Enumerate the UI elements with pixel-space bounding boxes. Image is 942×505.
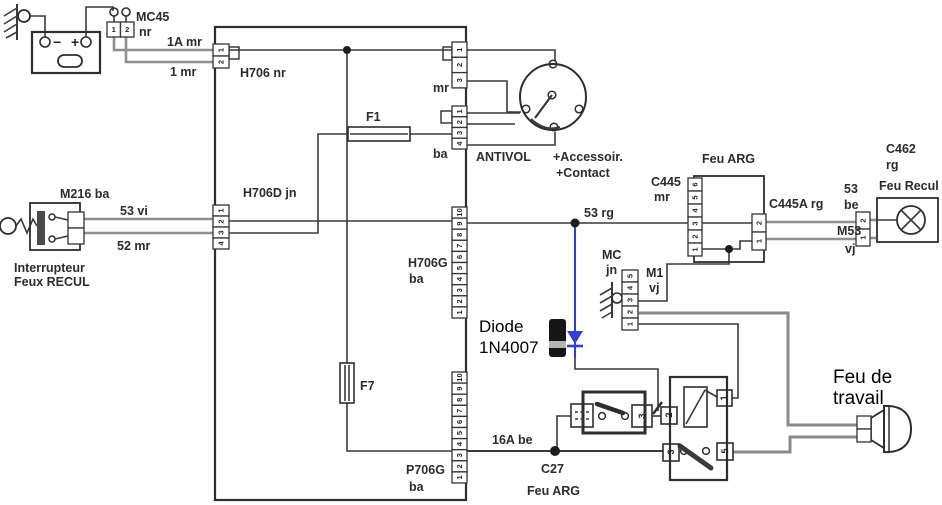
relay2-pin5: 5 [720, 448, 730, 453]
m216-connector [68, 212, 84, 244]
label-c27-feu-arg: Feu ARG [527, 484, 580, 498]
battery-slot [58, 55, 82, 67]
wire-f7-to-p706g [347, 403, 452, 451]
antivol-mr-connector: 123 [452, 42, 467, 88]
pin-number: 2 [626, 310, 635, 314]
pin-number: 1 [112, 25, 116, 34]
label-antivol-accessoir: +Accessoir. [553, 150, 623, 164]
label-feu-recul-title: Feu Recul [879, 179, 939, 193]
work-lamp [871, 406, 911, 452]
label-antivol-ba: ba [433, 147, 449, 161]
diode-component [549, 319, 583, 357]
h706d-connector: 1234 [213, 205, 229, 249]
ground-symbol-battery [4, 4, 30, 40]
pin-number: 2 [455, 299, 464, 303]
label-53rg: 53 rg [584, 206, 614, 220]
pin-number: 2 [455, 63, 464, 67]
pin-number: 5 [455, 431, 464, 435]
wiring-diagram: − + [0, 0, 942, 505]
battery-plus-sign: + [71, 34, 79, 50]
pin-number: 8 [455, 233, 464, 237]
label-m216: M216 ba [60, 187, 110, 201]
label-h706g-color: ba [409, 272, 425, 286]
pin-number: 2 [455, 120, 464, 124]
label-p706g-color: ba [409, 480, 425, 494]
pin-number: 5 [455, 266, 464, 270]
wire-relay2-pin5-to-worklamp [733, 437, 857, 452]
pin-number: 2 [217, 60, 226, 64]
pin-number: 1 [455, 109, 464, 113]
pin-number: 1 [217, 48, 226, 52]
pin-number: 3 [455, 288, 464, 292]
relay2-pin3: 3 [666, 449, 676, 454]
pin-cell [857, 416, 871, 429]
label-c462: C462 [886, 142, 916, 156]
pin-number: 3 [217, 230, 226, 234]
pin-number: 9 [455, 387, 464, 391]
relay2-pin2: 2 [664, 412, 674, 417]
label-h706d: H706D jn [243, 186, 297, 200]
h706g-connector: 10987654321 [452, 207, 467, 318]
fuse-f7 [340, 363, 354, 403]
relay-2: 2 1 3 5 [653, 377, 733, 480]
wire-antivol-ba4 [467, 132, 555, 145]
label-feux-recul: Feux RECUL [14, 275, 90, 289]
label-c27: C27 [541, 462, 564, 476]
label-mc45: MC45 [136, 10, 169, 24]
wire-antivol-pin1 [467, 50, 555, 61]
label-f7: F7 [360, 379, 375, 393]
label-h706g: H706G [408, 256, 448, 270]
junction-dots [343, 46, 733, 456]
label-mc: MC [602, 248, 621, 262]
wiring-diagram-page: − + [0, 0, 942, 505]
label-wire-1a-mr: 1A mr [167, 35, 202, 49]
ignition-key-lever [535, 95, 552, 118]
antivol-ba-tab [441, 111, 452, 123]
pin-number: 2 [691, 234, 700, 238]
antivol-mr-tab [443, 47, 452, 60]
relay2-blade [680, 446, 711, 468]
pin-number: 2 [125, 25, 129, 34]
annotation-worklight-line2: travail [833, 388, 884, 409]
wire-52-to-f1 [229, 134, 348, 233]
pin-number: 10 [455, 373, 464, 381]
label-p706g: P706G [406, 463, 445, 477]
c445-connector: 654321 [688, 178, 702, 256]
pin-number: 2 [455, 464, 464, 468]
label-wire-1-mr: 1 mr [170, 65, 197, 79]
label-53vi: 53 vi [120, 204, 148, 218]
relay1-pin3: 3 [637, 413, 647, 418]
pin-cell [68, 212, 84, 228]
annotation-diode-line1: Diode [479, 317, 523, 336]
pin-number: 8 [455, 398, 464, 402]
pin-number: 5 [691, 195, 700, 199]
pin-number: 1 [455, 310, 464, 314]
battery-minus-sign: − [53, 34, 61, 50]
label-c445: C445 [651, 175, 681, 189]
pin-number: 3 [626, 298, 635, 302]
antivol-ba-connector: 1234 [452, 106, 467, 149]
pin-number: 3 [691, 221, 700, 225]
m1-connector: 54321 [622, 270, 638, 330]
ignition-switch [520, 60, 586, 131]
pin-number: 6 [691, 182, 700, 186]
fuse-f1 [348, 127, 410, 141]
pin-number: 3 [455, 131, 464, 135]
pin-number: 5 [626, 274, 635, 278]
label-f1: F1 [366, 110, 381, 124]
pin-cell [68, 228, 84, 244]
junction-c27 [550, 446, 560, 456]
label-c445-color: mr [654, 190, 670, 204]
label-53be-2: be [844, 198, 859, 212]
pin-number: 1 [455, 475, 464, 479]
label-antivol-contact: +Contact [556, 166, 611, 180]
label-m1: M1 [646, 266, 663, 280]
relay-1: 3 [571, 392, 652, 433]
label-16a-be: 16A be [492, 433, 533, 447]
pin-number: 3 [455, 453, 464, 457]
c445a-connector: 21 [752, 214, 766, 250]
junction-53rg [571, 219, 580, 228]
pin-number: 2 [755, 221, 764, 225]
annotation-worklight-line1: Feu de [833, 367, 892, 388]
label-c445a: C445A rg [769, 197, 823, 211]
worklamp-connector [857, 416, 871, 442]
pin-number: 6 [455, 255, 464, 259]
label-h706: H706 nr [240, 66, 286, 80]
mc-ground-symbol [600, 282, 622, 318]
h706-tab [229, 47, 239, 59]
junction-top [343, 46, 351, 54]
label-c462-color: rg [886, 158, 899, 172]
pin-number: 1 [691, 247, 700, 251]
label-antivol-title: ANTIVOL [476, 150, 531, 164]
pin-number: 1 [626, 322, 635, 326]
h706-connector: 12 [213, 44, 229, 68]
relay1-blade [597, 404, 623, 413]
pin-number: 10 [455, 208, 464, 216]
pin-number: 1 [217, 208, 226, 212]
mc45-pin-strip: 12 [107, 22, 134, 37]
junction-feuarg [725, 245, 733, 253]
pin-number: 7 [455, 409, 464, 413]
pin-number: 1 [755, 239, 764, 243]
label-interrupteur: Interrupteur [14, 261, 85, 275]
relay2-pin1: 1 [719, 395, 729, 400]
pin-cell [857, 429, 871, 442]
pin-number: 3 [455, 78, 464, 82]
label-feu-arg-title: Feu ARG [702, 152, 755, 166]
label-vj: vj [649, 281, 659, 295]
pin-number: 1 [455, 48, 464, 52]
pin-number: 9 [455, 222, 464, 226]
label-52mr: 52 mr [117, 239, 150, 253]
wire-relay1-coil-to-c27 [557, 416, 571, 451]
wire-antivol-pin3 [467, 81, 521, 112]
diode-symbol-triangle [567, 331, 583, 344]
pin-number: 6 [455, 420, 464, 424]
label-antivol-mr: mr [433, 81, 449, 95]
label-m53-2: vj [845, 242, 855, 256]
p706g-connector: 10987654321 [452, 372, 467, 483]
switch-plunger-bar [37, 211, 45, 245]
label-mc45-color: nr [139, 25, 152, 39]
battery: − + [32, 32, 100, 73]
label-jn: jn [605, 263, 617, 277]
feu-recul-lamp [877, 198, 938, 242]
pin-number: 2 [859, 218, 868, 222]
label-53be-1: 53 [844, 182, 858, 196]
pin-number: 7 [455, 244, 464, 248]
annotation-diode-line2: 1N4007 [479, 338, 539, 357]
label-m53-1: M53 [837, 224, 861, 238]
pin-number: 2 [217, 219, 226, 223]
